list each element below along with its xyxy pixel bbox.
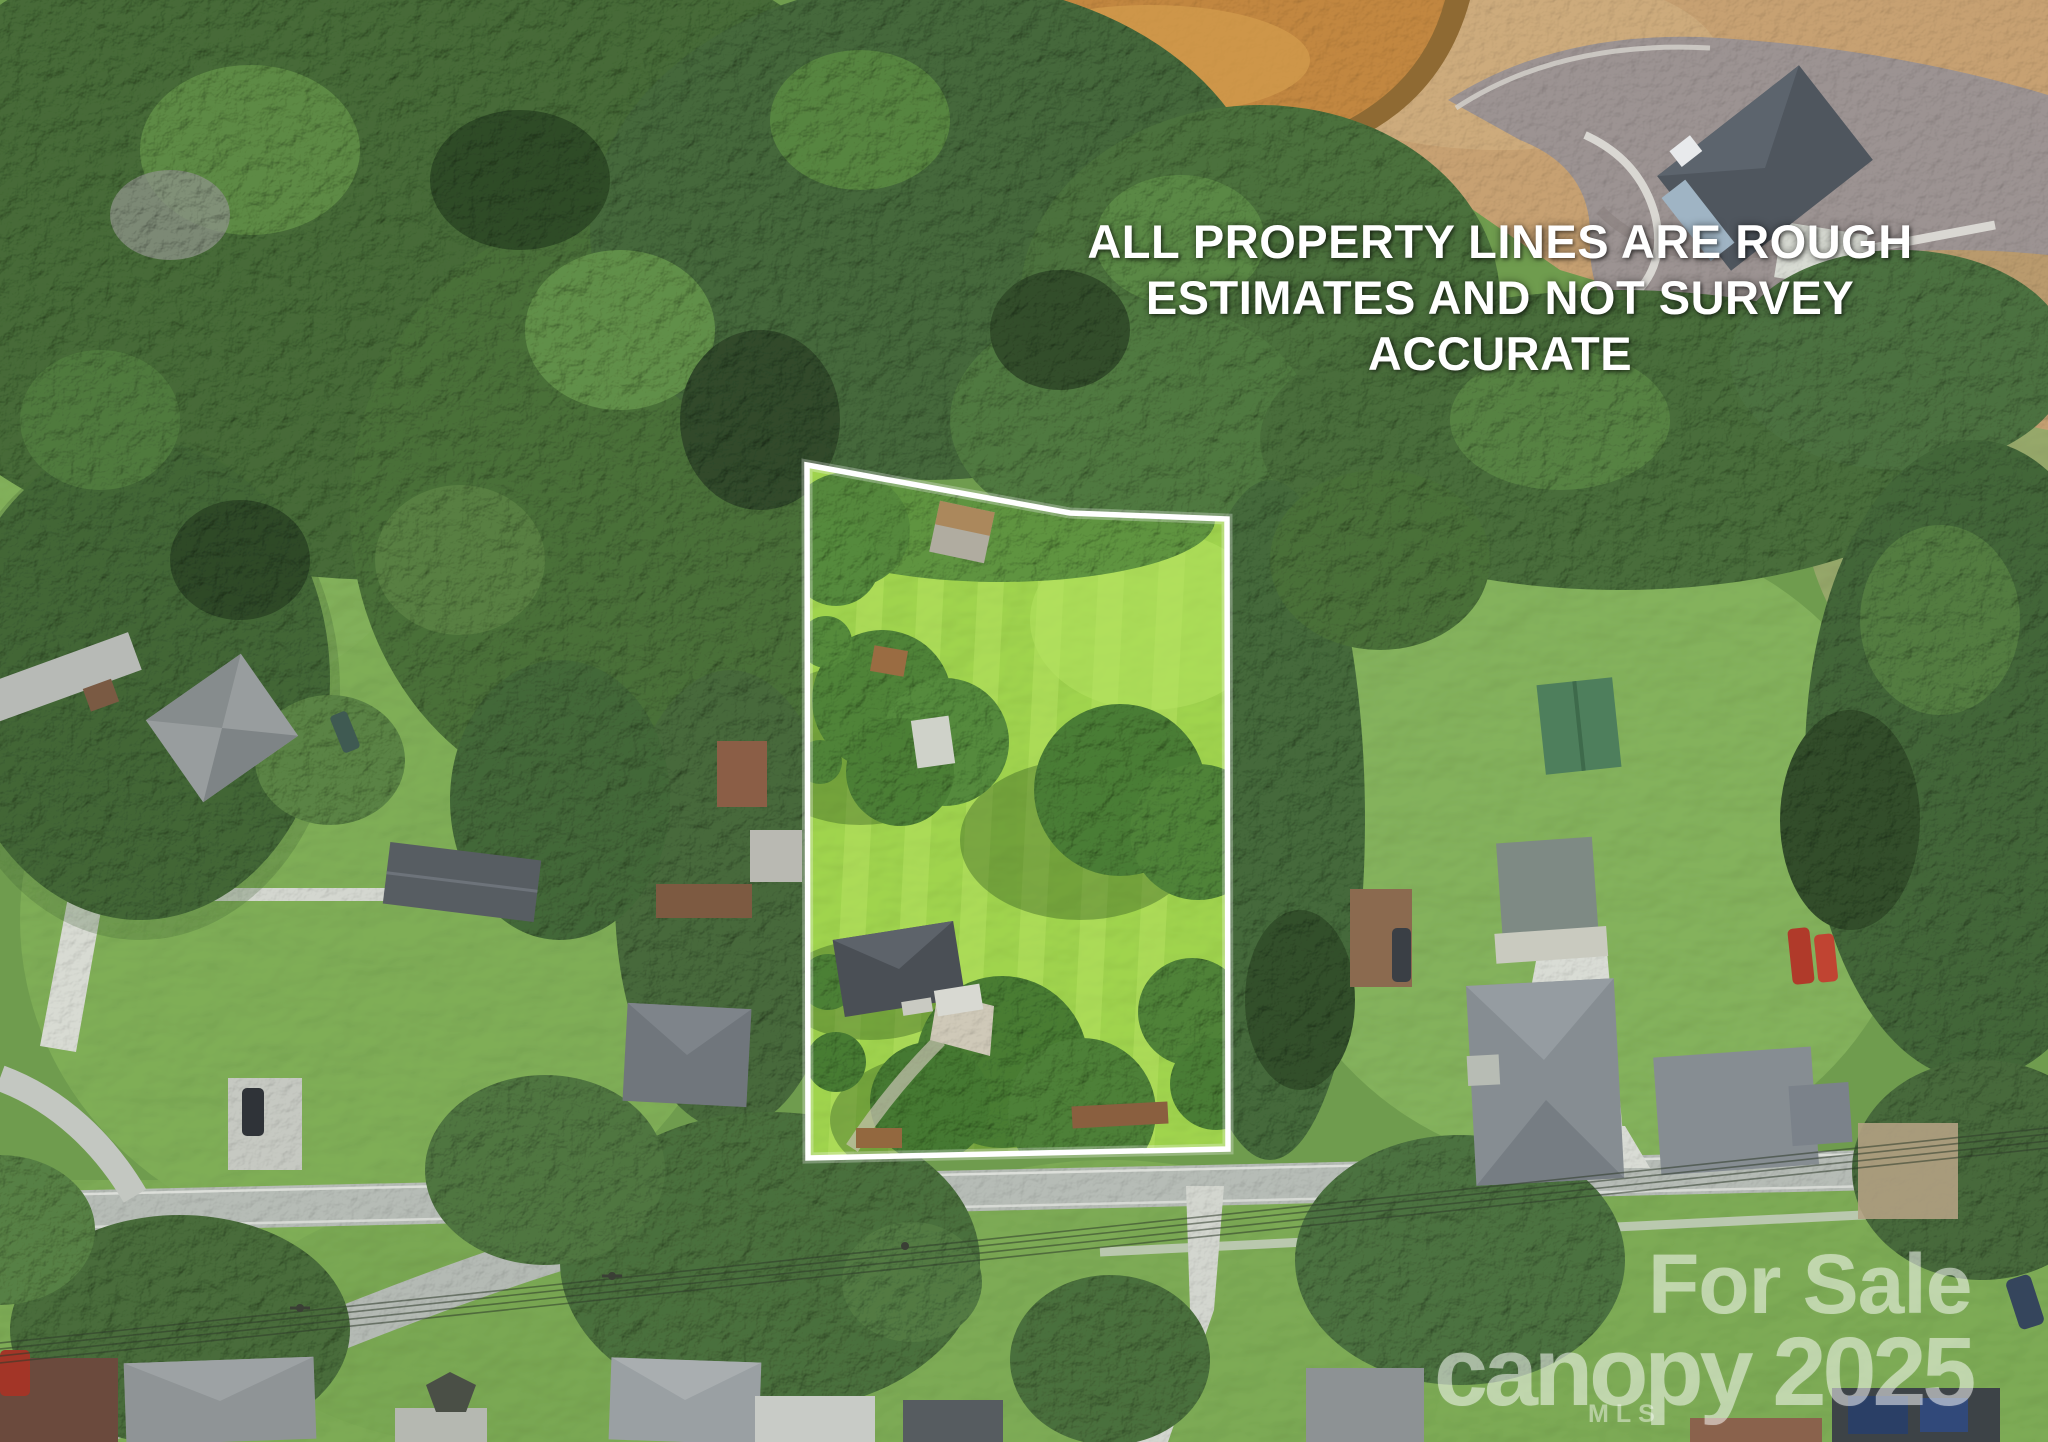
watermark-brand-year: canopy 2025 [1434,1316,1972,1428]
house-bottom-light [609,1357,762,1442]
parking-pad [228,1078,302,1170]
shed-gray [750,830,802,882]
garage-bottom [395,1408,487,1442]
watermark-mls: MLS [1588,1400,1662,1429]
barn-green-roof [1537,677,1622,774]
house-bottom-charcoal [903,1400,1003,1442]
house-bottom-grayhip [124,1357,317,1442]
aerial-photo: ALL PROPERTY LINES ARE ROUGH ESTIMATES A… [0,0,2048,1442]
deck-brown [656,884,752,918]
disclaimer-text: ALL PROPERTY LINES ARE ROUGH ESTIMATES A… [1060,214,1940,382]
red-car-left [0,1350,30,1396]
garden-bed2 [856,1128,902,1148]
house-bottom-gray2 [1306,1368,1424,1442]
house-right-mid [1488,836,1608,964]
subject-lot [750,458,1270,1190]
house-left-of-road [623,1003,752,1107]
dark-truck [1392,928,1411,982]
disclaimer-line-1: ALL PROPERTY LINES ARE ROUGH [1060,214,1940,270]
disclaimer-line-3: ACCURATE [1060,326,1940,382]
house-bottom-white [755,1396,875,1442]
deadfall-creek [110,170,230,260]
disclaimer-line-2: ESTIMATES AND NOT SURVEY [1060,270,1940,326]
house-right-large [1463,978,1624,1186]
house-right-tan [1858,1123,1958,1219]
lot-shed-small [911,716,955,769]
dark-car-left [242,1088,264,1136]
shed-rust [717,741,767,807]
